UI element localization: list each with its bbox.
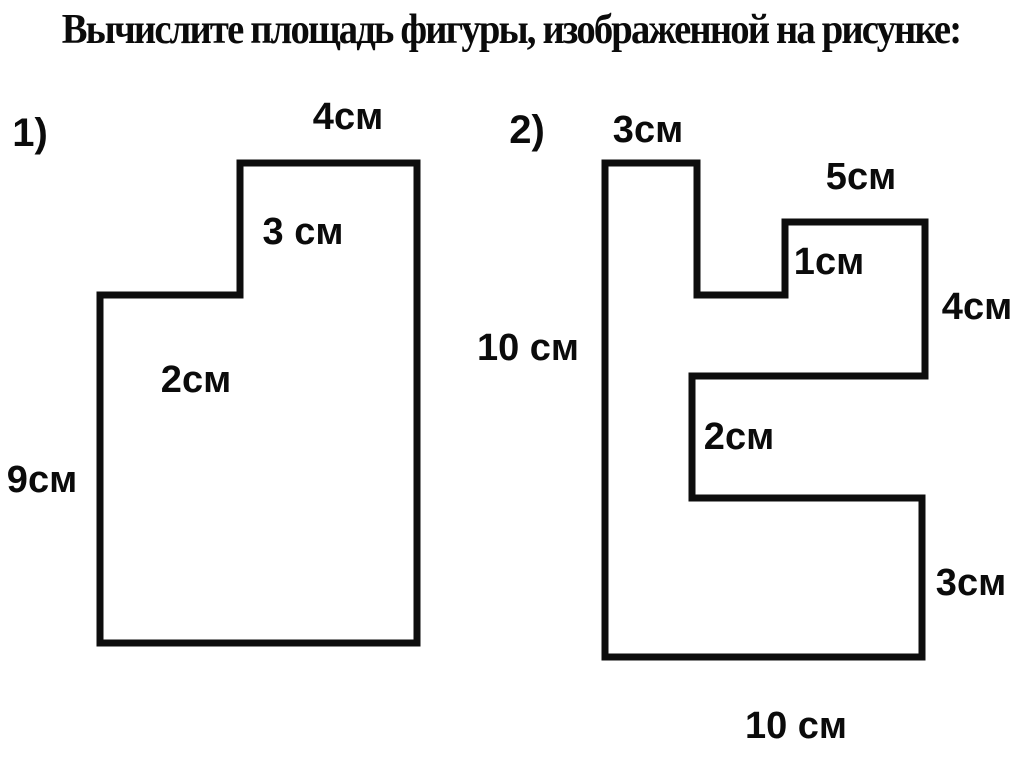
figure-2-lower-right-dimension: 3см [936, 564, 1006, 602]
worksheet-page: Вычислите площадь фигуры, изображенной н… [0, 0, 1022, 766]
figure-2-upper-right-dimension: 4см [942, 288, 1012, 326]
figure-2-column-top-dimension: 3см [613, 111, 683, 149]
figure-1-number: 1) [12, 113, 48, 153]
figure-2-upper-block-top-dimension: 5см [826, 158, 896, 196]
figure-1-top-dimension: 4см [313, 98, 383, 136]
figure-2-shape [605, 163, 925, 657]
figure-2-left-dimension: 10 см [477, 329, 579, 367]
figure-1-ledge-dimension: 2см [161, 361, 231, 399]
figure-2-bottom-dimension: 10 см [745, 707, 847, 745]
figure-1-group [100, 163, 417, 643]
figure-1-left-dimension: 9см [7, 461, 77, 499]
figure-2-inner-step-dimension: 1см [794, 243, 864, 281]
figure-2-middle-notch-dimension: 2см [704, 418, 774, 456]
figure-1-shape [100, 163, 417, 643]
figure-2-group [605, 163, 925, 657]
figure-1-step-dimension: 3 см [263, 213, 344, 251]
figure-2-number: 2) [509, 110, 545, 150]
